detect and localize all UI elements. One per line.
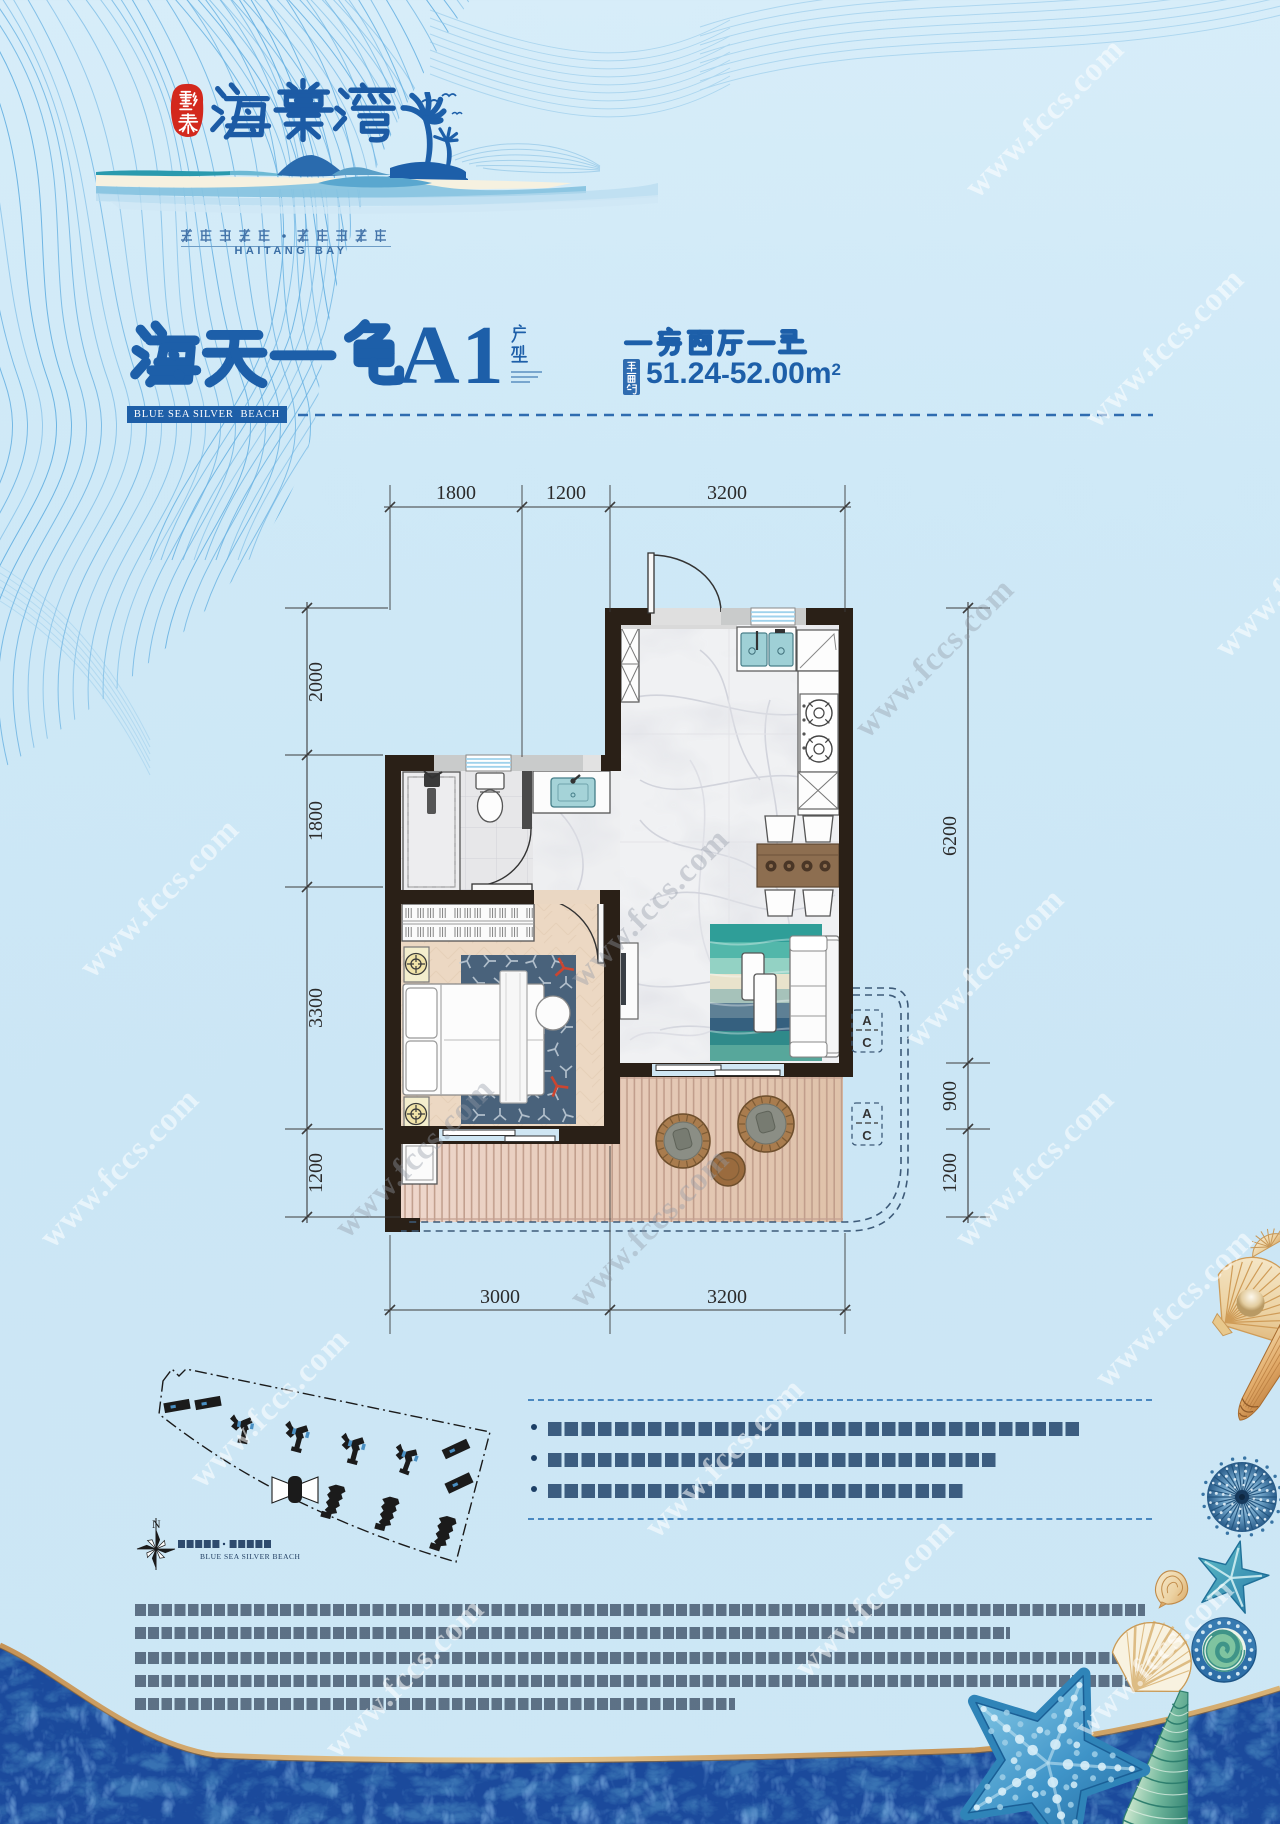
svg-text:A: A	[862, 1106, 872, 1121]
svg-text:2000: 2000	[305, 662, 327, 702]
svg-text:A: A	[862, 1013, 872, 1028]
svg-text:6200: 6200	[939, 816, 961, 856]
svg-text:900: 900	[939, 1081, 961, 1111]
svg-text:1200: 1200	[305, 1153, 327, 1193]
svg-text:1800: 1800	[305, 801, 327, 841]
svg-text:1200: 1200	[939, 1153, 961, 1193]
svg-text:3200: 3200	[707, 482, 747, 504]
svg-text:C: C	[862, 1128, 872, 1143]
svg-text:3300: 3300	[305, 988, 327, 1028]
svg-text:1800: 1800	[436, 482, 476, 504]
svg-text:1200: 1200	[546, 482, 586, 504]
svg-text:C: C	[862, 1035, 872, 1050]
